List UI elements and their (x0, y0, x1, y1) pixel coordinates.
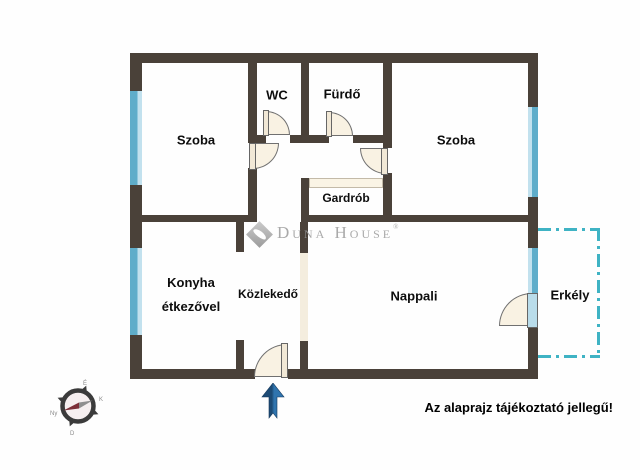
compass-west-label: Ny (50, 411, 57, 417)
wall-segment (130, 53, 142, 91)
door-leaf-balcony (527, 293, 538, 328)
watermark-registered-mark: ® (393, 223, 398, 231)
watermark-swoosh-icon (252, 227, 268, 241)
door-leaf-entrance (281, 343, 288, 378)
door-leaf-wc (263, 110, 269, 136)
wall-segment (130, 215, 257, 222)
compass-east-label: K (99, 397, 103, 403)
wall-segment (236, 222, 244, 252)
disclaimer-text: Az alaprajz tájékoztató jellegű! (424, 400, 613, 415)
open-wall-band (300, 253, 308, 341)
room-label-kozlekedo: Közlekedő (238, 287, 298, 301)
door-arc-room-left (253, 143, 279, 169)
balcony-outline-right (597, 228, 600, 358)
door-arc-wc (266, 111, 290, 135)
room-label-konyha-line2: étkezővel (162, 295, 221, 319)
wall-segment (301, 62, 309, 138)
wall-segment (130, 53, 538, 63)
door-arc-bathroom (329, 112, 353, 136)
door-leaf-room-left (249, 143, 256, 170)
watermark-diamond-icon (246, 221, 273, 248)
entrance-arrow-icon (261, 383, 285, 419)
wall-segment (236, 340, 244, 369)
room-label-nappali: Nappali (391, 289, 438, 304)
wall-segment (288, 369, 538, 379)
compass-icon: É K D Ny (50, 379, 106, 437)
watermark-brand-text: Duna House® (277, 223, 398, 243)
wardrobe-open-front (309, 178, 383, 188)
compass-north-label: É (83, 380, 87, 387)
room-label-furdo: Fürdő (324, 87, 361, 102)
balcony-outline-top (538, 228, 600, 231)
room-label-konyha-line1: Konyha (162, 271, 221, 295)
door-leaf-room-right (381, 148, 388, 175)
wall-segment (300, 341, 308, 369)
window-marker (528, 248, 538, 293)
wall-segment (528, 53, 538, 107)
floor-plan: Szoba WC Fürdő Szoba Gardrób Konyha étke… (0, 0, 640, 470)
wall-segment (353, 135, 392, 143)
wall-segment (130, 369, 255, 379)
wall-segment (290, 135, 329, 143)
room-label-szoba-right: Szoba (437, 133, 475, 148)
compass-south-label: D (70, 431, 75, 437)
window-marker (130, 248, 142, 335)
wall-segment (248, 135, 266, 143)
window-marker (528, 107, 538, 197)
wall-segment (528, 328, 538, 379)
wall-segment (528, 197, 538, 248)
wall-segment (301, 178, 309, 222)
wall-segment (130, 335, 142, 379)
wall-segment (248, 53, 257, 143)
room-label-konyha: Konyha étkezővel (162, 271, 221, 319)
room-label-erkely: Erkély (550, 288, 589, 303)
room-label-gardrob: Gardrób (322, 191, 369, 205)
balcony-outline-bottom (538, 355, 600, 358)
door-leaf-bathroom (326, 111, 332, 137)
room-label-wc: WC (266, 88, 288, 103)
watermark-brand: Duna House (277, 223, 393, 242)
window-marker (130, 91, 142, 185)
wall-segment (248, 168, 257, 222)
watermark: Duna House® (246, 221, 398, 244)
room-label-szoba-left: Szoba (177, 133, 215, 148)
